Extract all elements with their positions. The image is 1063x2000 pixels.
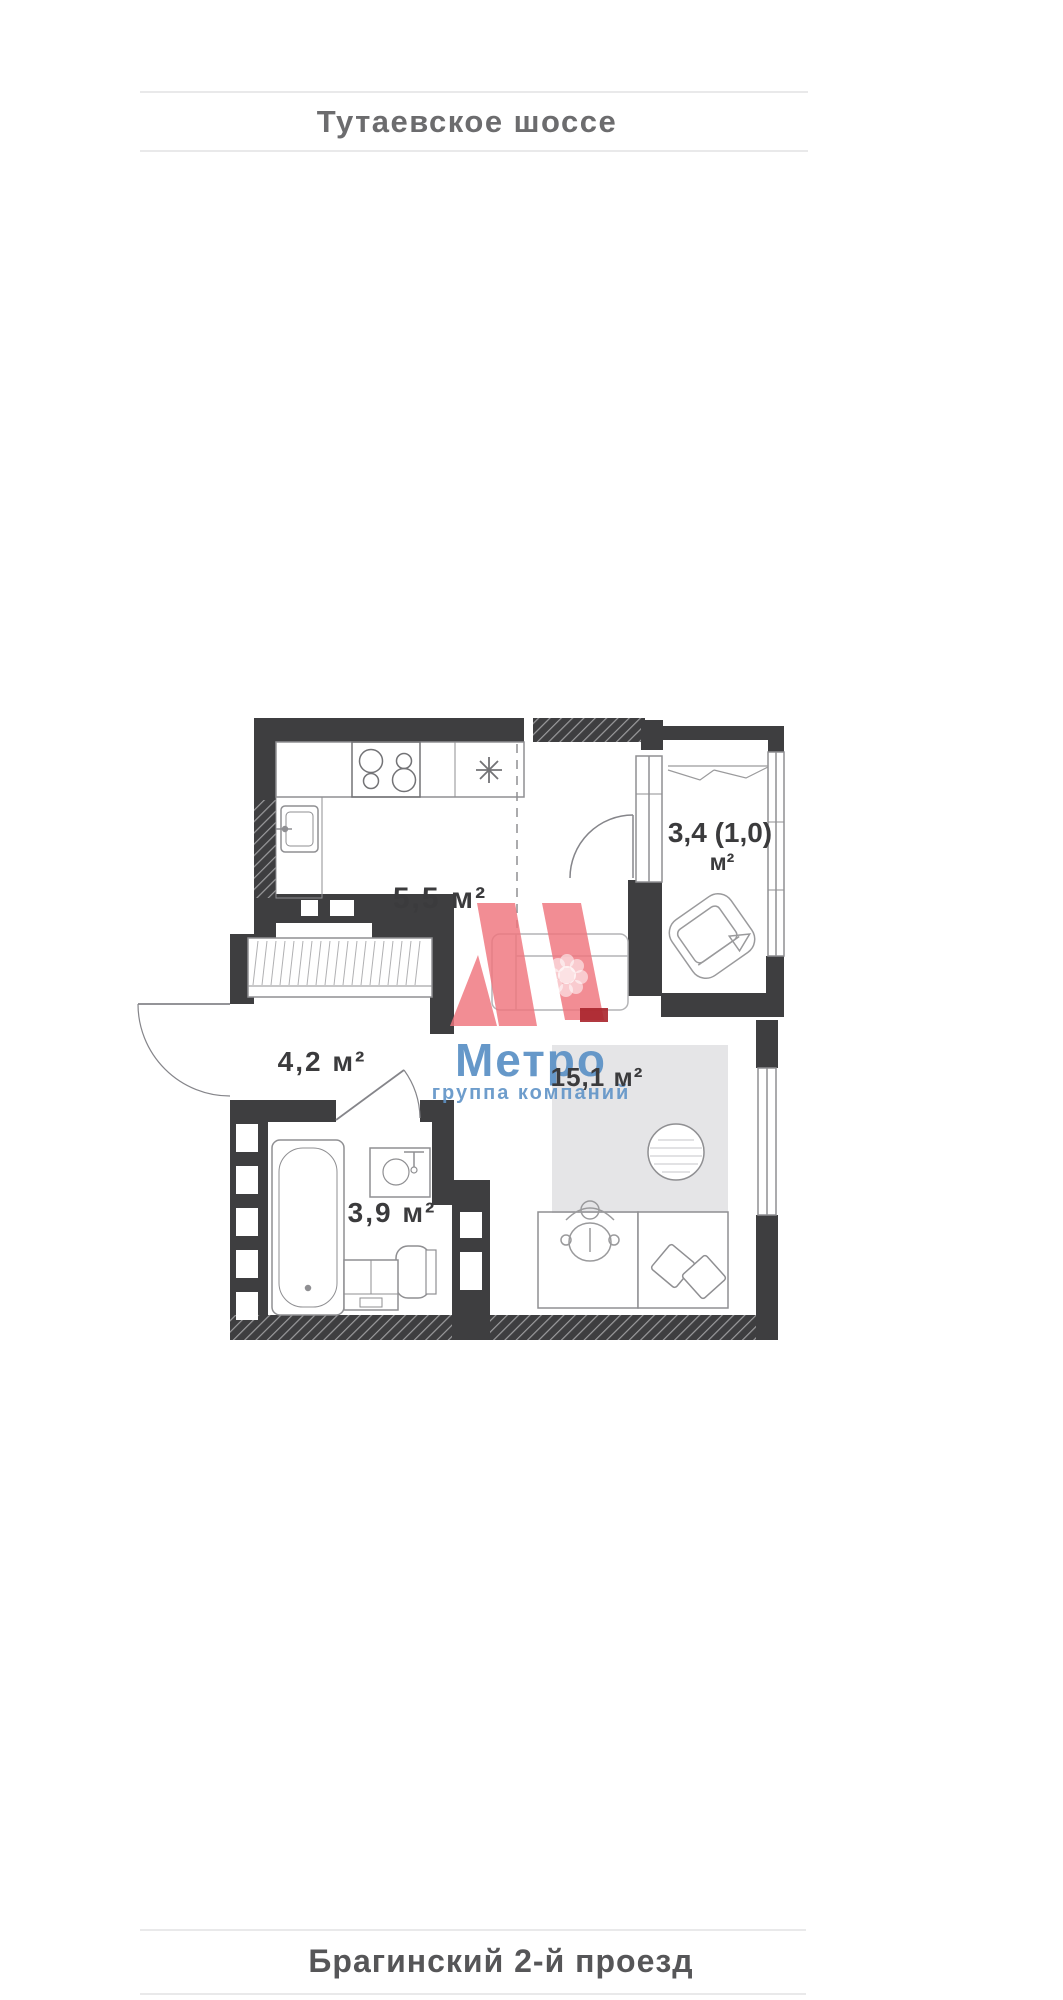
sink-icon: [276, 806, 318, 852]
balcony-area-unit-label: м²: [710, 849, 735, 875]
armchair-icon: [663, 888, 761, 985]
wardrobe: [248, 938, 432, 997]
round-table-icon: [648, 1124, 704, 1180]
living-area-label: 15,1 м²: [551, 1062, 644, 1092]
floor-plan-image: Тутаевское шоссе Брагинский 2-й проезд: [0, 0, 1063, 2000]
bottom-street-label: Брагинский 2-й проезд: [308, 1943, 693, 1979]
balcony-door-arc: [570, 815, 633, 878]
vent-icon: [476, 757, 502, 783]
top-street-band: Тутаевское шоссе: [140, 92, 808, 151]
washbasin-icon: [370, 1148, 430, 1197]
top-street-label: Тутаевское шоссе: [317, 104, 618, 139]
floorplan-page: Тутаевское шоссе Брагинский 2-й проезд: [0, 0, 1063, 2000]
balcony-window-sill-mark: [714, 767, 768, 778]
balcony-area-label: 3,4 (1,0): [668, 817, 772, 848]
metro-logo-accent: [580, 1008, 608, 1022]
hallway-area-label: 4,2 м²: [278, 1046, 367, 1077]
entrance-door: [138, 1004, 230, 1096]
bed-icon: [638, 1212, 728, 1308]
toilet-icon: [396, 1246, 436, 1298]
bathroom-door: [336, 1070, 420, 1120]
kitchen-area-label: 5,5 м²: [393, 882, 487, 915]
stove-icon: [352, 742, 420, 797]
balcony-window-sill-mark: [668, 770, 714, 780]
desk-icon: [538, 1212, 638, 1308]
washing-machine-icon: [344, 1260, 398, 1310]
balcony: [663, 766, 768, 984]
bottom-street-band: Брагинский 2-й проезд: [140, 1930, 806, 1994]
bathtub-icon: [272, 1140, 344, 1315]
bathroom-area-label: 3,9 м²: [348, 1197, 437, 1228]
